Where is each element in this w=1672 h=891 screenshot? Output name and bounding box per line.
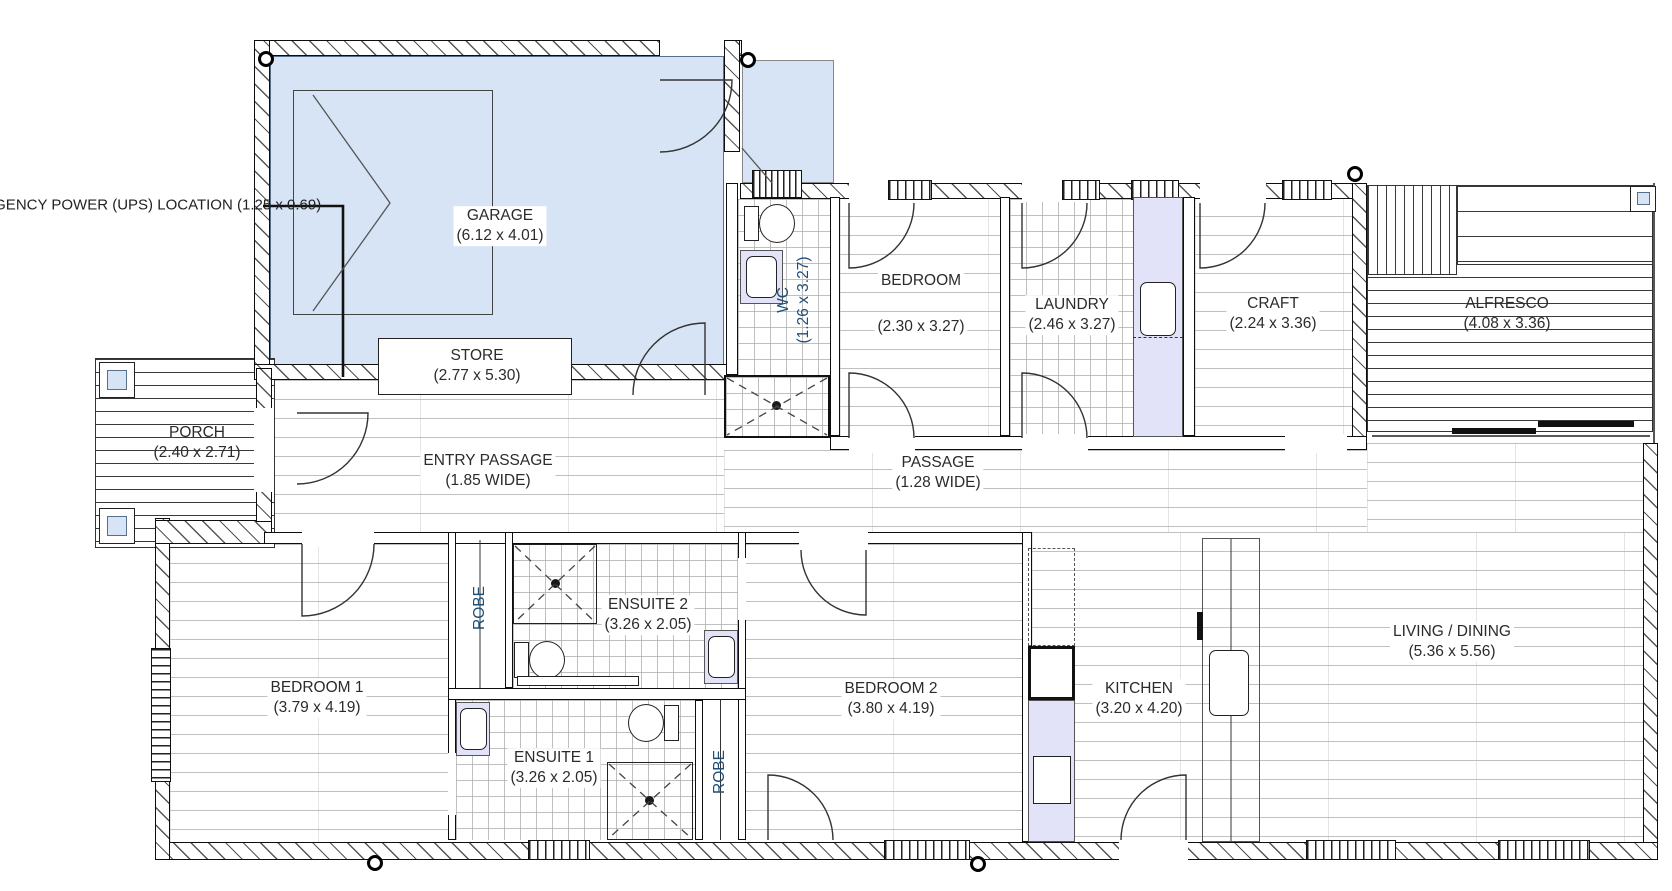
- laundry-dims: (2.46 x 3.27): [1028, 315, 1115, 335]
- wc-toilet-tank: [744, 206, 759, 241]
- living-top-floor: [1367, 443, 1643, 532]
- wall-right: [1643, 443, 1658, 860]
- alfresco-steps: [1367, 185, 1457, 275]
- marker-dot-bottom-left: [367, 855, 383, 871]
- opening-ensuite2-door: [738, 558, 746, 620]
- robe1-name: ROBE: [470, 586, 490, 630]
- kitchen-sink: [1209, 650, 1249, 716]
- bedroom2-dims: (3.80 x 4.19): [844, 699, 937, 719]
- passage-name: PASSAGE: [895, 453, 980, 473]
- opening-ensuite1-door: [448, 753, 456, 815]
- ups-line2: LOCATION: [157, 196, 233, 213]
- window-ensuite1-bottom: [528, 840, 590, 860]
- wc-basin: [746, 256, 777, 298]
- label-wc: WC (1.26 x 3.27): [774, 256, 814, 343]
- kitchen-dims: (3.20 x 4.20): [1095, 699, 1182, 719]
- entry-passage-name: ENTRY PASSAGE: [423, 451, 552, 471]
- kitchen-cooktop: [1028, 646, 1075, 700]
- store-dims: (2.77 x 5.30): [433, 366, 520, 386]
- porch-name: PORCH: [153, 423, 240, 443]
- bedroom2-name: BEDROOM 2: [844, 679, 937, 699]
- island-handle: [1197, 612, 1203, 640]
- marker-dot-bottom-mid: [970, 856, 986, 872]
- wall-garage-top: [254, 40, 660, 56]
- exterior-pad: [742, 60, 834, 183]
- window-living-bottom-1: [1306, 840, 1396, 860]
- wall-wc-bedroom: [830, 197, 840, 436]
- wall-bath-mid: [448, 688, 746, 700]
- window-bedroom-top: [888, 180, 932, 200]
- opening-bedroom1-door: [302, 530, 374, 547]
- opening-bedroom-passage: [849, 434, 915, 453]
- ups-dims: (1.25 x 0.69): [237, 196, 321, 213]
- wall-lower-top: [264, 532, 1028, 544]
- garage-dims: (6.12 x 4.01): [456, 226, 543, 246]
- wc-name: WC: [774, 256, 794, 343]
- porch-post-top-core: [107, 370, 127, 390]
- label-entry-passage: ENTRY PASSAGE (1.85 WIDE): [420, 451, 555, 491]
- window-laundry-top: [1062, 180, 1100, 200]
- label-ensuite1: ENSUITE 1 (3.26 x 2.05): [507, 748, 600, 788]
- label-living-dining: LIVING / DINING (5.36 x 5.56): [1390, 622, 1514, 662]
- wall-ensuite1-robe2: [695, 700, 703, 840]
- ensuite1-shower-drain: [645, 796, 654, 805]
- ensuite2-toilet-bowl: [529, 641, 565, 679]
- label-laundry: LAUNDRY (2.46 x 3.27): [1025, 295, 1118, 335]
- marker-dot-alfresco: [1347, 166, 1363, 182]
- living-dining-dims: (5.36 x 5.56): [1393, 642, 1511, 662]
- wall-robe1-ensuite2: [505, 532, 513, 688]
- craft-dims: (2.24 x 3.36): [1229, 314, 1316, 334]
- ups-line1: EMERGENCY POWER (UPS): [0, 196, 153, 213]
- label-robe1: ROBE: [470, 586, 490, 630]
- wall-porch-connector: [155, 520, 272, 544]
- marker-dot-garage-left: [258, 51, 274, 67]
- alfresco-edge: [1653, 183, 1655, 443]
- wall-wc-left: [726, 183, 738, 375]
- ensuite2-toilet-tank: [514, 642, 529, 678]
- laundry-tub: [1140, 282, 1176, 336]
- label-garage: GARAGE (6.12 x 4.01): [453, 206, 546, 246]
- ensuite2-shower-drain: [551, 579, 560, 588]
- bedroom1-dims: (3.79 x 4.19): [270, 698, 363, 718]
- porch-dims: (2.40 x 2.71): [153, 443, 240, 463]
- window-craft-top: [1282, 180, 1332, 200]
- garage-name: GARAGE: [456, 206, 543, 226]
- label-porch: PORCH (2.40 x 2.71): [150, 423, 243, 463]
- ensuite1-basin: [460, 708, 487, 750]
- opening-laundry-passage: [1022, 434, 1088, 453]
- alfresco-upper-deck: [1457, 185, 1653, 265]
- opening-front-door: [254, 408, 274, 492]
- kitchen-name: KITCHEN: [1095, 679, 1182, 699]
- laundry-bench-dash: [1133, 337, 1183, 338]
- opening-craft-top: [1200, 181, 1266, 202]
- label-ensuite2: ENSUITE 2 (3.26 x 2.05): [601, 595, 694, 635]
- laundry-name: LAUNDRY: [1028, 295, 1115, 315]
- ups-annotation: EMERGENCY POWER (UPS) LOCATION (1.25 x 0…: [0, 195, 321, 215]
- ensuite2-bench: [517, 676, 639, 686]
- label-robe2: ROBE: [710, 750, 730, 794]
- opening-craft-passage: [1285, 434, 1347, 453]
- label-craft: CRAFT (2.24 x 3.36): [1226, 294, 1319, 334]
- robe2-name: ROBE: [710, 750, 730, 794]
- craft-name: CRAFT: [1229, 294, 1316, 314]
- passage-dims: (1.28 WIDE): [895, 473, 980, 493]
- opening-bedroom2-door: [799, 530, 868, 547]
- ensuite2-name: ENSUITE 2: [604, 595, 691, 615]
- wc-dims: (1.26 x 3.27): [794, 256, 814, 343]
- window-bedroom1-left: [151, 648, 171, 782]
- alfresco-post-core: [1637, 192, 1650, 205]
- wc-shower-drain: [772, 401, 781, 410]
- alfresco-dims: (4.08 x 3.36): [1463, 314, 1550, 334]
- ensuite1-name: ENSUITE 1: [510, 748, 597, 768]
- kitchen-dishwasher: [1033, 756, 1071, 804]
- bedroom-dims: (2.30 x 3.27): [877, 317, 964, 337]
- wc-toilet-bowl: [759, 204, 795, 243]
- ensuite1-dims: (3.26 x 2.05): [510, 768, 597, 788]
- store-name: STORE: [433, 346, 520, 366]
- pad-steps: [752, 170, 802, 198]
- label-passage: PASSAGE (1.28 WIDE): [892, 453, 983, 493]
- label-bedroom-name: BEDROOM: [878, 271, 964, 291]
- bedroom-name: BEDROOM: [881, 271, 961, 291]
- marker-dot-garage-right: [740, 52, 756, 68]
- wall-bedroom-laundry: [1000, 197, 1010, 436]
- label-alfresco: ALFRESCO (4.08 x 3.36): [1460, 294, 1553, 334]
- label-bedroom2: BEDROOM 2 (3.80 x 4.19): [841, 679, 940, 719]
- opening-kitchen-exterior-door: [1119, 840, 1188, 861]
- ensuite2-dims: (3.26 x 2.05): [604, 615, 691, 635]
- floor-plan: EMERGENCY POWER (UPS) LOCATION (1.25 x 0…: [0, 0, 1672, 891]
- porch-post-bottom-core: [107, 516, 127, 536]
- entry-passage-dims: (1.85 WIDE): [423, 471, 552, 491]
- window-bedroom2-bottom: [884, 840, 970, 860]
- ensuite1-toilet-bowl: [628, 704, 664, 742]
- living-dining-name: LIVING / DINING: [1393, 622, 1511, 642]
- bedroom1-name: BEDROOM 1: [270, 678, 363, 698]
- label-bedroom-dims: (2.30 x 3.27): [874, 317, 967, 337]
- kitchen-overhead-cabinet: [1028, 548, 1075, 646]
- label-bedroom1: BEDROOM 1 (3.79 x 4.19): [267, 678, 366, 718]
- wall-bench-craft: [1183, 197, 1195, 436]
- wall-garage-right: [724, 40, 740, 152]
- window-living-bottom-2: [1498, 840, 1590, 860]
- label-store: STORE (2.77 x 5.30): [430, 346, 523, 386]
- ensuite2-basin: [708, 636, 735, 678]
- alfresco-name: ALFRESCO: [1463, 294, 1550, 314]
- ensuite1-toilet-tank: [664, 705, 679, 741]
- label-kitchen: KITCHEN (3.20 x 4.20): [1092, 679, 1185, 719]
- garage-door-panel: [293, 90, 493, 315]
- wall-craft-alfresco: [1352, 183, 1367, 443]
